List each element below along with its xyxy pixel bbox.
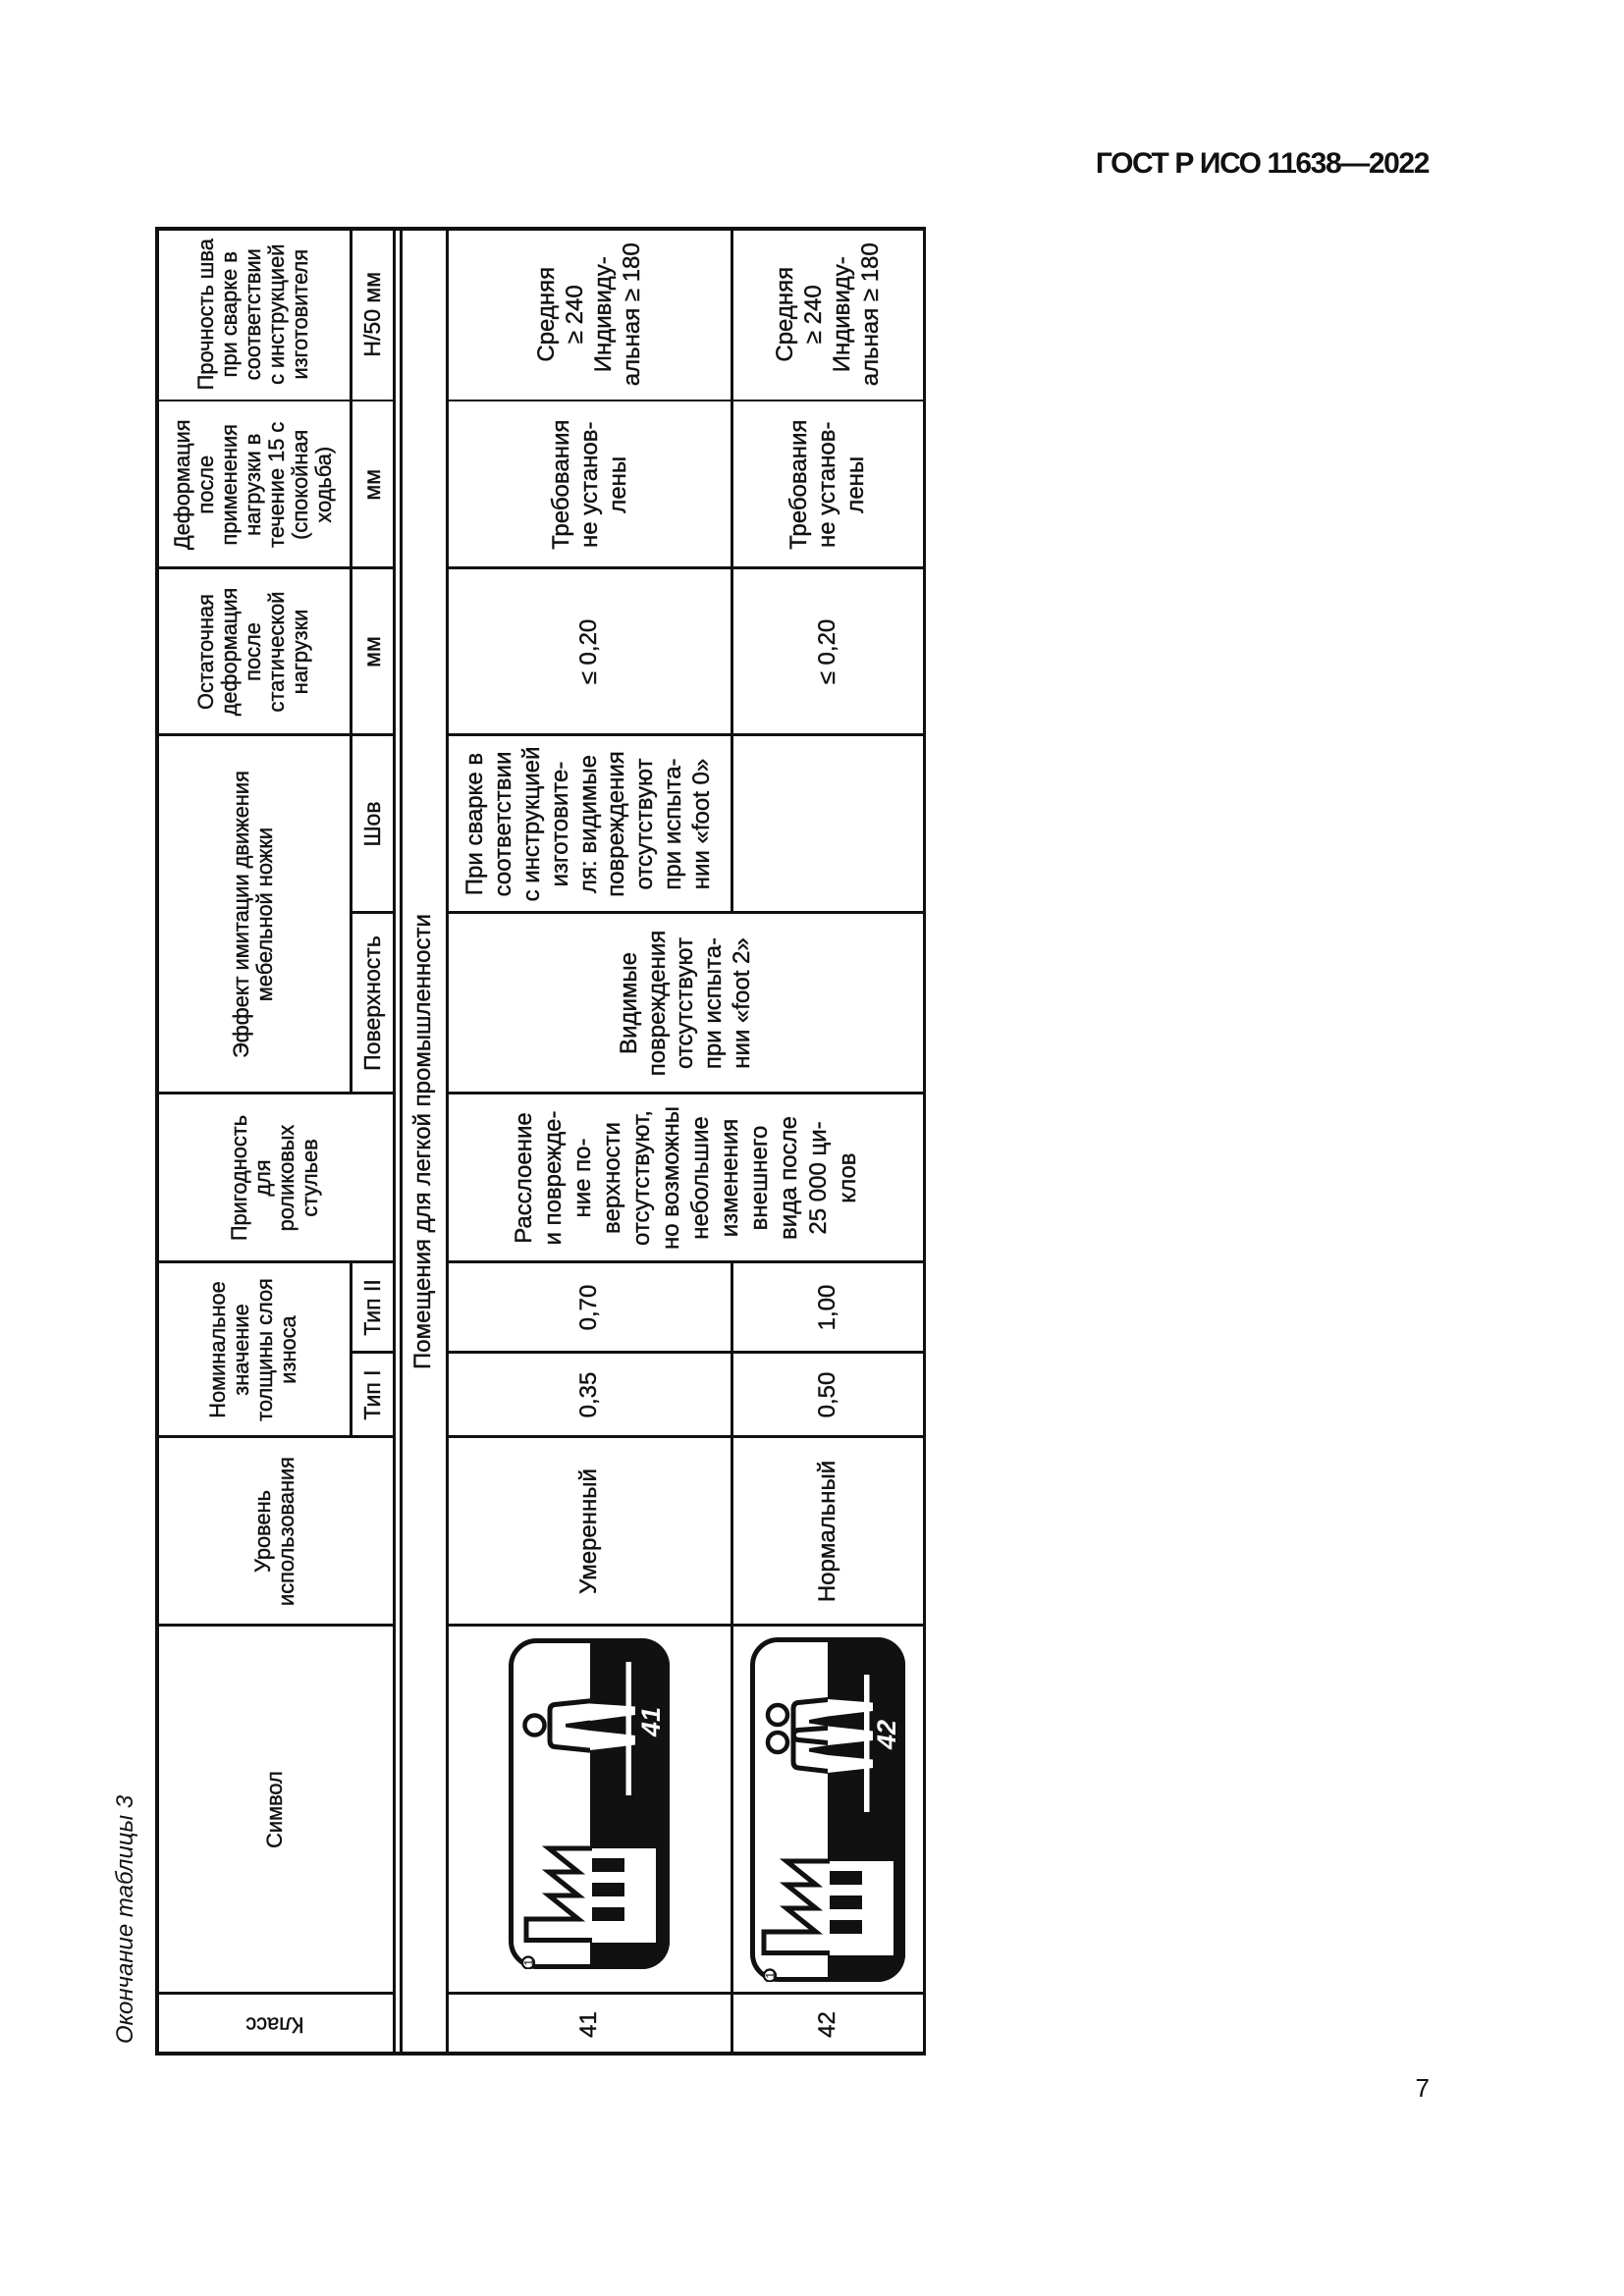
svg-text:42: 42 [872,1720,901,1750]
svg-text:41: 41 [636,1707,666,1737]
svg-text:1: 1 [763,1972,777,1979]
svg-text:1: 1 [522,1959,536,1966]
